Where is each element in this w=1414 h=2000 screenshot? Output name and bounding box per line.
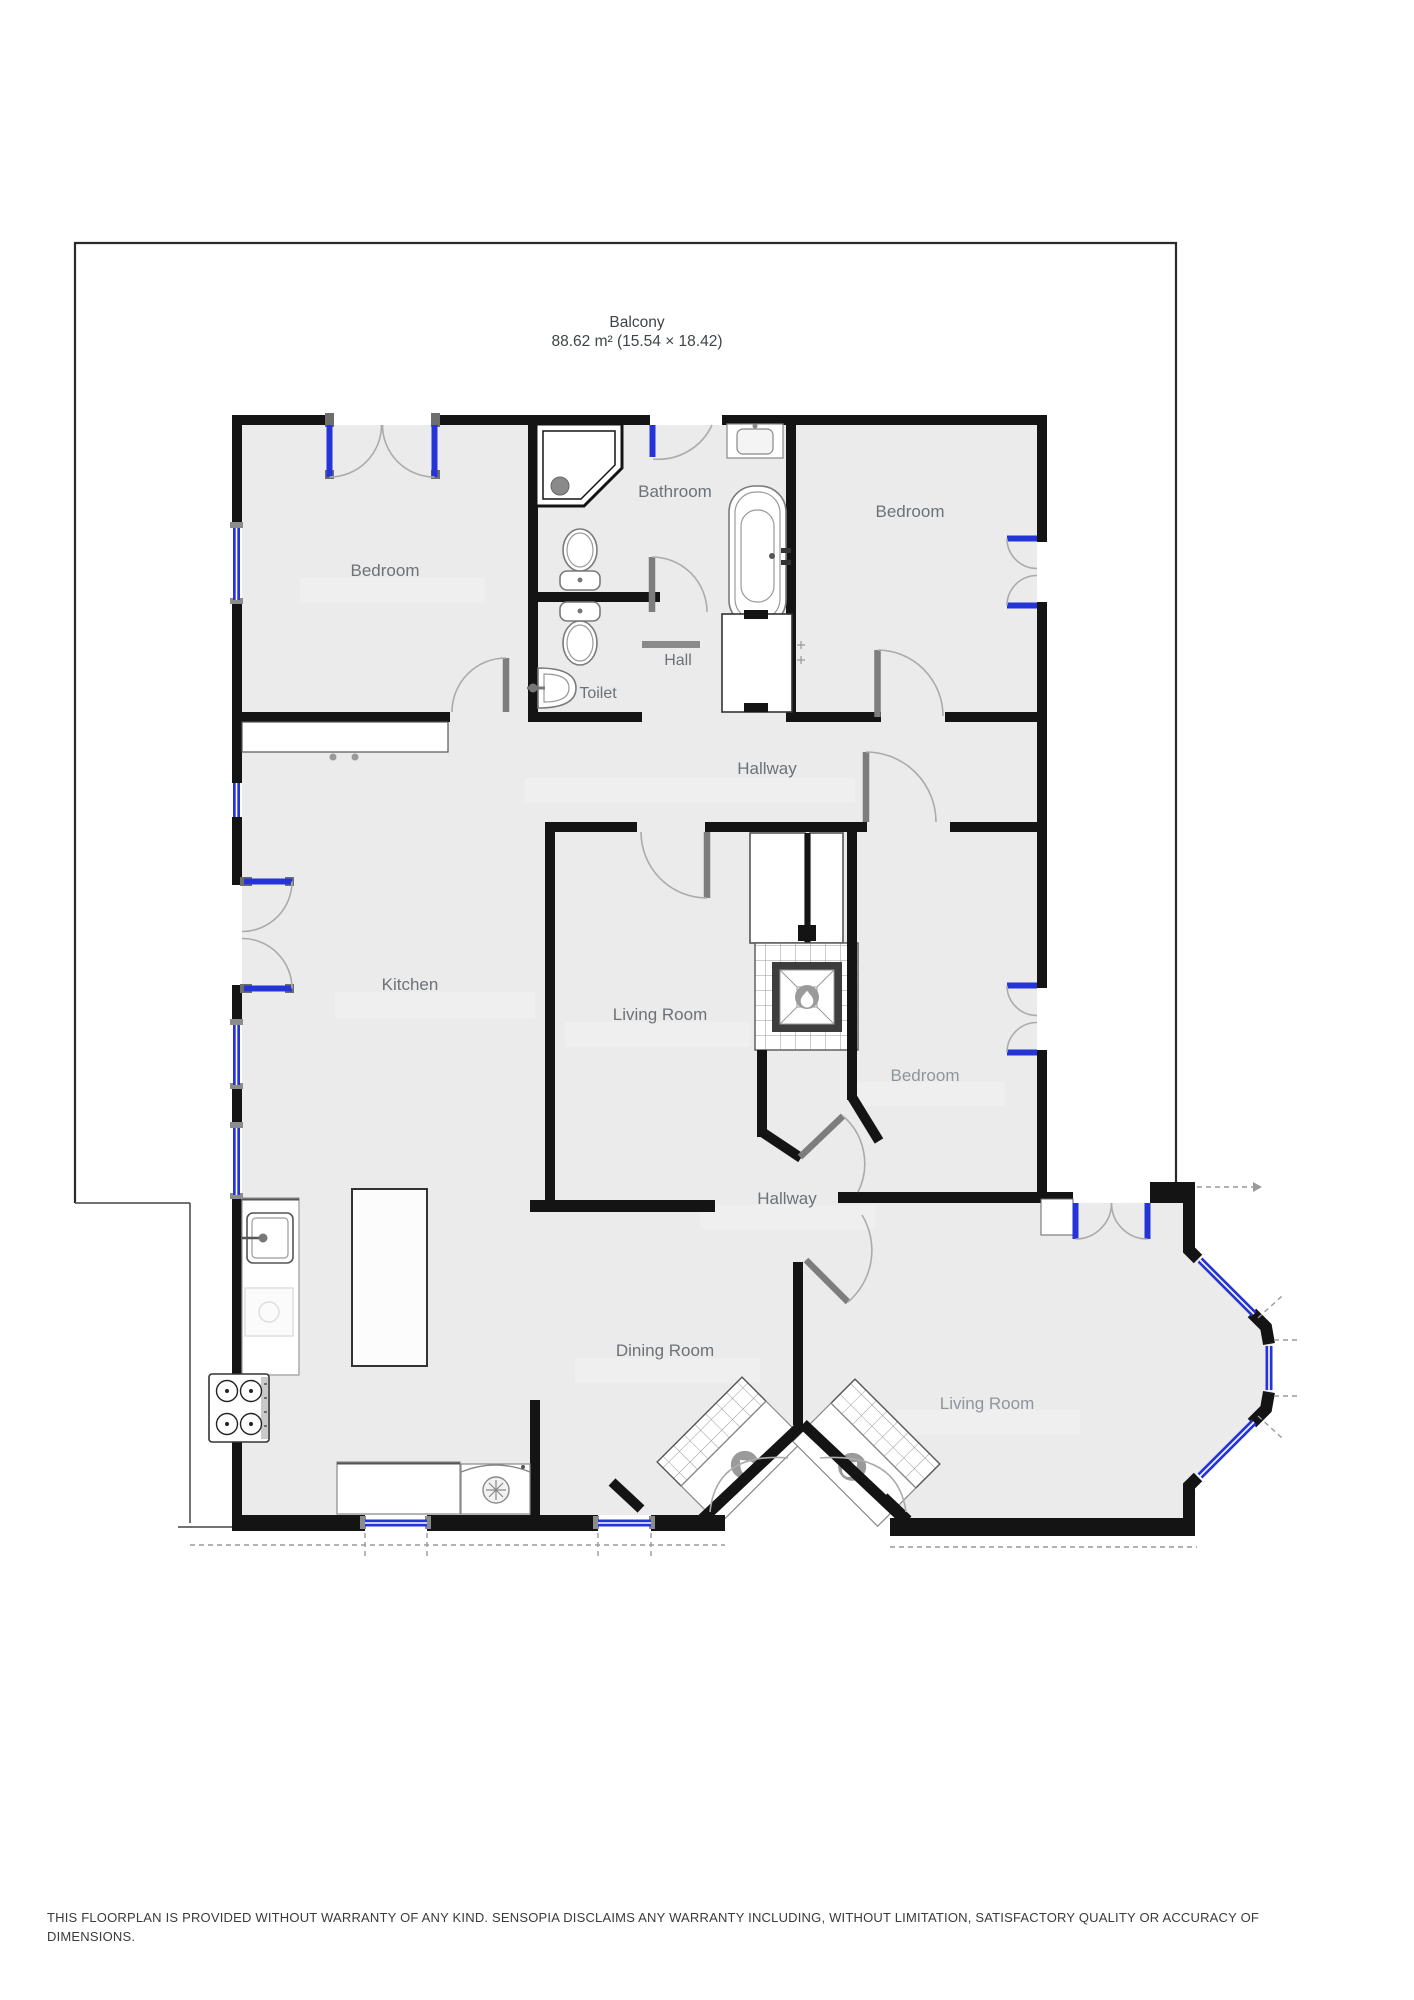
chimney-flues — [750, 833, 843, 943]
room-label-bedroom-mid: Bedroom — [891, 1066, 960, 1085]
fireplace-center — [755, 943, 858, 1050]
balcony-area-label: 88.62 m² (15.54 × 18.42) — [551, 333, 722, 350]
floorplan-page: Balcony 88.62 m² (15.54 × 18.42) Bedroom… — [0, 0, 1414, 2000]
room-label-bedroom-tr: Bedroom — [876, 502, 945, 521]
disclaimer: THIS FLOORPLAN IS PROVIDED WITHOUT WARRA… — [47, 1910, 1259, 1944]
room-label-hallway-upper: Hallway — [737, 759, 797, 778]
toilet-icon — [560, 602, 600, 665]
room-label-bathroom: Bathroom — [638, 482, 712, 501]
window — [593, 1516, 655, 1529]
room-label-dining-room: Dining Room — [616, 1341, 714, 1360]
window — [230, 1019, 243, 1089]
disclaimer-line2: DIMENSIONS. — [47, 1929, 135, 1944]
window — [230, 1122, 243, 1199]
dishwasher-icon — [245, 1288, 293, 1336]
hall-step — [642, 641, 700, 648]
kitchen-counter-icon — [242, 1198, 299, 1375]
vanity-sink-icon — [727, 424, 783, 459]
balcony-label: Balcony — [609, 314, 664, 331]
worktop-icon — [337, 1462, 460, 1514]
room-label-hall: Hall — [664, 652, 692, 669]
window — [360, 1516, 431, 1529]
toilet-icon — [560, 529, 600, 590]
room-label-toilet: Toilet — [579, 685, 617, 702]
hall-closet-icon — [722, 610, 805, 712]
wall-return — [1041, 1199, 1073, 1235]
room-label-kitchen: Kitchen — [382, 975, 439, 994]
window — [230, 522, 243, 604]
bathtub-icon — [729, 486, 791, 626]
room-label-living-room-mid: Living Room — [613, 1005, 708, 1024]
room-label-hallway-lower: Hallway — [757, 1189, 817, 1208]
washing-machine-icon — [461, 1464, 530, 1514]
room-label-bedroom-tl: Bedroom — [351, 561, 420, 580]
disclaimer-line1: THIS FLOORPLAN IS PROVIDED WITHOUT WARRA… — [47, 1910, 1259, 1925]
floorplan-canvas: Balcony 88.62 m² (15.54 × 18.42) Bedroom… — [0, 0, 1414, 2000]
room-label-living-room-br: Living Room — [940, 1394, 1035, 1413]
stove-icon — [209, 1374, 269, 1442]
kitchen-island-icon — [352, 1189, 427, 1366]
